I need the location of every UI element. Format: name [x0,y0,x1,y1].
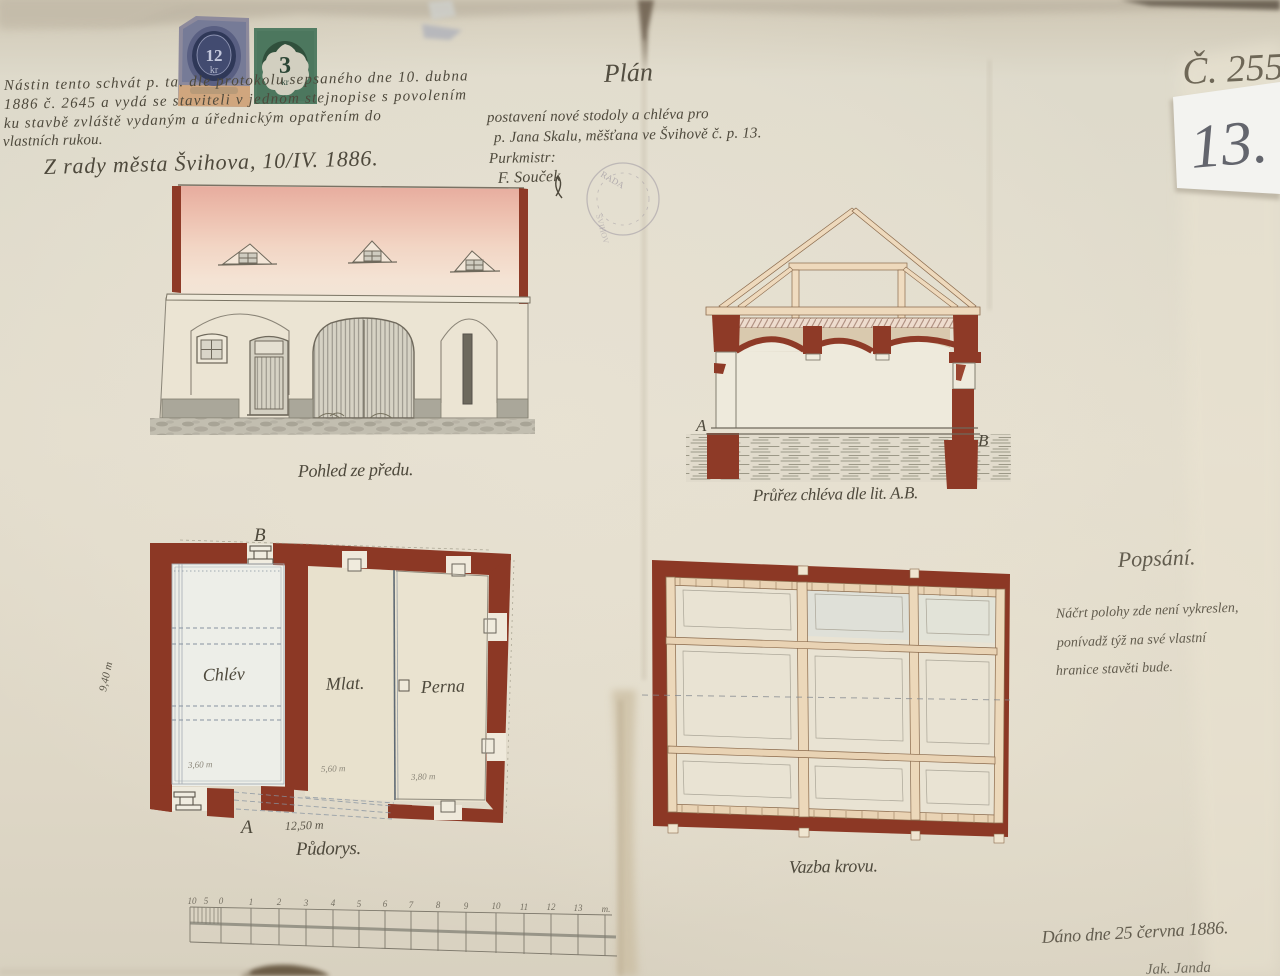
svg-text:Perna: Perna [419,675,465,697]
svg-text:5: 5 [357,899,362,909]
svg-text:13: 13 [574,903,584,913]
svg-text:Chlév: Chlév [202,664,245,685]
svg-text:Jak. Janda: Jak. Janda [1146,960,1212,976]
svg-text:Průřez chléva dle lit. A.B.: Průřez chléva dle lit. A.B. [752,483,918,505]
svg-text:3,80 m: 3,80 m [410,771,436,782]
svg-text:12: 12 [206,46,223,65]
svg-text:Vazba krovu.: Vazba krovu. [789,855,878,877]
svg-text:Pohled ze předu.: Pohled ze předu. [297,459,413,481]
svg-text:1: 1 [249,897,254,907]
svg-text:10: 10 [492,901,502,911]
svg-text:B: B [978,431,989,450]
svg-text:Plán: Plán [602,57,653,88]
svg-text:A: A [695,416,707,435]
svg-text:12: 12 [547,902,557,912]
svg-text:3: 3 [303,898,309,908]
svg-text:Popsání.: Popsání. [1116,544,1195,572]
svg-text:13.: 13. [1187,107,1270,181]
svg-text:8: 8 [436,900,441,910]
svg-text:A: A [239,817,253,838]
svg-text:Mlat.: Mlat. [324,673,364,694]
svg-text:5: 5 [204,896,209,906]
svg-text:vlastních rukou.: vlastních rukou. [3,132,103,150]
svg-text:Purkmistr:: Purkmistr: [488,150,556,167]
svg-text:Půdorys.: Půdorys. [295,838,361,860]
svg-text:0: 0 [219,896,224,906]
svg-text:11: 11 [520,902,528,912]
svg-text:F. Souček: F. Souček [497,168,562,187]
svg-text:9: 9 [464,901,469,911]
svg-text:12,50 m: 12,50 m [285,818,324,833]
svg-text:B: B [254,525,266,546]
svg-text:4: 4 [331,898,336,908]
svg-text:m.: m. [602,904,611,914]
svg-text:5,60 m: 5,60 m [321,763,346,774]
svg-text:6: 6 [383,899,388,909]
svg-text:10: 10 [188,896,198,906]
svg-text:2: 2 [277,897,282,907]
svg-text:7: 7 [409,900,414,910]
svg-text:3,60 m: 3,60 m [187,759,213,770]
